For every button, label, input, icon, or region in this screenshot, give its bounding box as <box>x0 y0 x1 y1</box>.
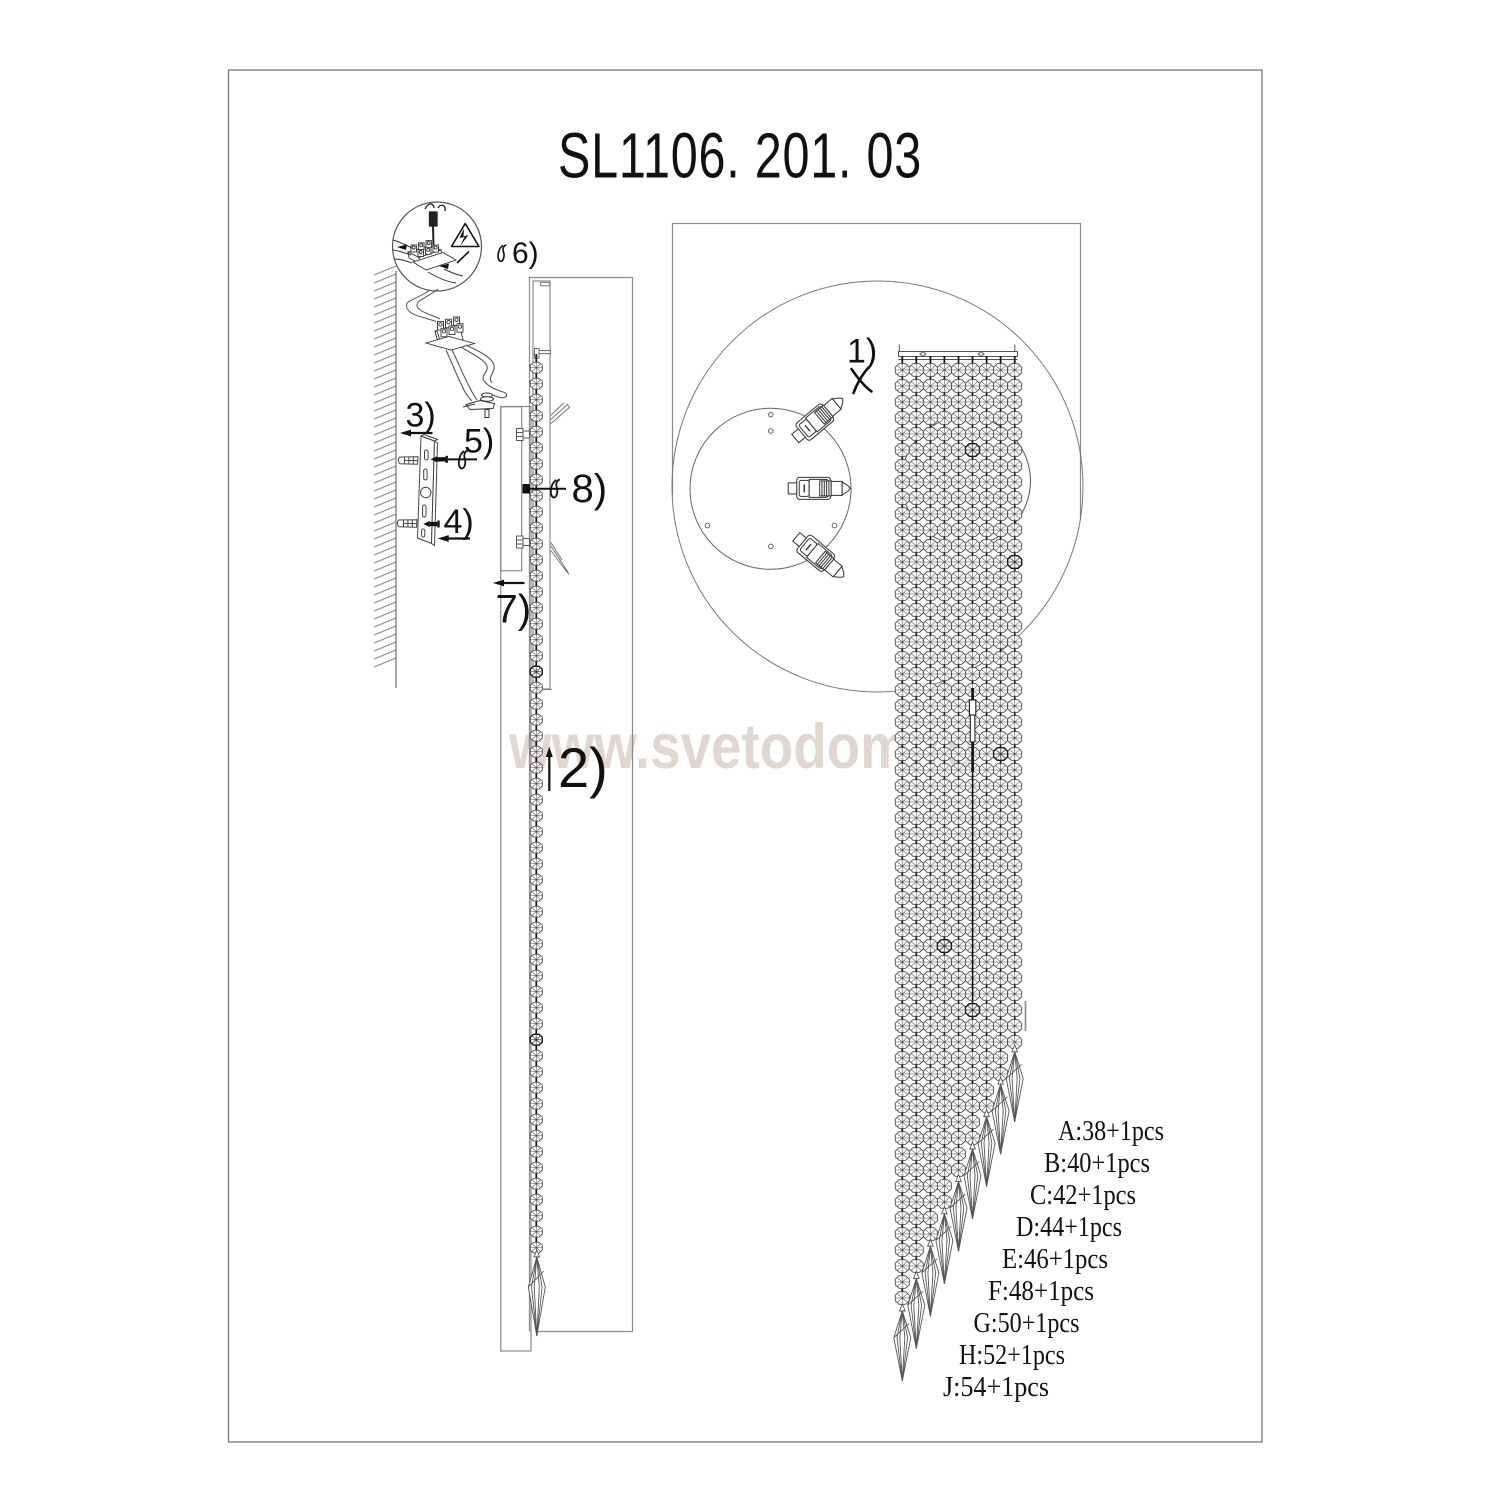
svg-text:A:38+1pcs: A:38+1pcs <box>1058 1116 1164 1147</box>
svg-text:D:44+1pcs: D:44+1pcs <box>1016 1212 1122 1243</box>
svg-text:J:54+1pcs: J:54+1pcs <box>943 1372 1049 1403</box>
svg-text:3): 3) <box>406 397 436 435</box>
svg-text:SL1106. 201. 03: SL1106. 201. 03 <box>558 120 922 192</box>
svg-text:7): 7) <box>496 588 532 632</box>
svg-text:8): 8) <box>572 467 608 511</box>
svg-text:1): 1) <box>847 333 877 371</box>
svg-text:6): 6) <box>512 237 539 270</box>
svg-text:5): 5) <box>464 423 494 461</box>
svg-text:C:42+1pcs: C:42+1pcs <box>1030 1180 1136 1211</box>
svg-text:E:46+1pcs: E:46+1pcs <box>1002 1244 1108 1275</box>
svg-text:H:52+1pcs: H:52+1pcs <box>959 1340 1065 1371</box>
svg-text:G:50+1pcs: G:50+1pcs <box>974 1308 1080 1339</box>
svg-text:4): 4) <box>444 503 474 541</box>
svg-text:B:40+1pcs: B:40+1pcs <box>1044 1148 1150 1179</box>
svg-text:F:48+1pcs: F:48+1pcs <box>988 1276 1094 1307</box>
svg-text:2): 2) <box>558 736 608 799</box>
